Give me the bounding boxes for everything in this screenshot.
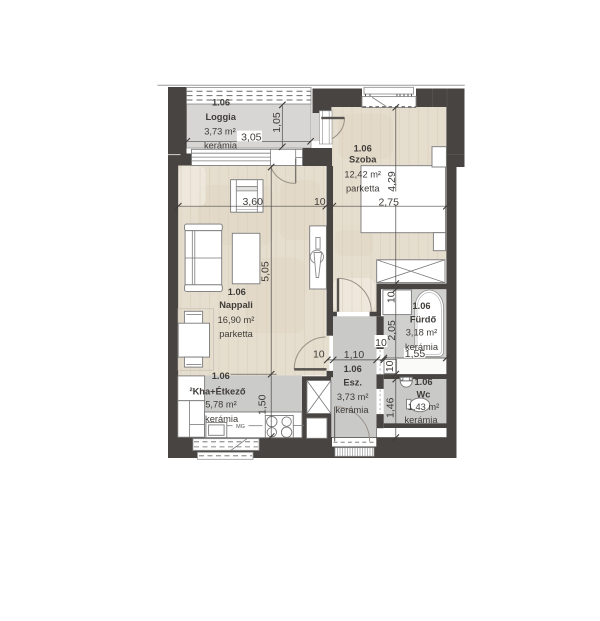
svg-text:Nappali: Nappali [219, 300, 253, 310]
svg-text:parketta: parketta [346, 183, 380, 193]
svg-text:1.06: 1.06 [414, 377, 432, 387]
svg-text:1.06: 1.06 [212, 371, 230, 381]
svg-text:5,05: 5,05 [259, 261, 271, 282]
svg-text:1.06: 1.06 [412, 301, 430, 311]
svg-text:MG: MG [236, 424, 245, 430]
svg-text:1.06: 1.06 [354, 144, 372, 154]
svg-text:3,05: 3,05 [241, 132, 262, 144]
svg-text:2,75: 2,75 [378, 196, 399, 208]
svg-text:1,10: 1,10 [344, 349, 365, 361]
svg-text:Fürdő: Fürdő [410, 315, 437, 325]
svg-text:Szoba: Szoba [349, 155, 377, 165]
svg-text:parketta: parketta [219, 329, 253, 339]
svg-text:3,73 m²: 3,73 m² [337, 392, 369, 402]
svg-text:1,46: 1,46 [384, 397, 396, 418]
svg-text:²Kha+Étkező: ²Kha+Étkező [189, 387, 245, 397]
svg-text:12,42 m²: 12,42 m² [344, 170, 381, 180]
svg-text:16,90 m²: 16,90 m² [218, 315, 255, 325]
svg-text:3,18 m²: 3,18 m² [406, 328, 438, 338]
svg-text:kerámia: kerámia [335, 405, 369, 415]
svg-text:kerámia: kerámia [404, 415, 438, 425]
svg-text:1.06: 1.06 [212, 97, 230, 107]
svg-text:1,50: 1,50 [257, 394, 269, 415]
svg-text:kerámia: kerámia [205, 414, 239, 424]
svg-text:10: 10 [314, 196, 326, 208]
svg-text:10: 10 [313, 348, 325, 360]
svg-text:10: 10 [384, 360, 396, 372]
svg-text:1,55: 1,55 [405, 348, 426, 360]
svg-text:Esz.: Esz. [343, 378, 362, 388]
svg-text:Loggia: Loggia [205, 112, 236, 122]
svg-text:1.06: 1.06 [228, 287, 246, 297]
svg-text:5,78 m²: 5,78 m² [205, 400, 237, 410]
svg-text:3,60: 3,60 [242, 196, 263, 208]
svg-text:4,29: 4,29 [386, 171, 398, 192]
svg-text:kerámia: kerámia [204, 141, 238, 151]
svg-text:10: 10 [385, 291, 397, 303]
svg-text:3,73 m²: 3,73 m² [204, 127, 236, 137]
svg-text:Wc: Wc [417, 390, 431, 400]
svg-text:1,43 m²: 1,43 m² [408, 402, 440, 412]
svg-text:1.06: 1.06 [344, 364, 362, 374]
svg-text:2,05: 2,05 [386, 320, 398, 341]
svg-text:1,05: 1,05 [271, 112, 283, 133]
